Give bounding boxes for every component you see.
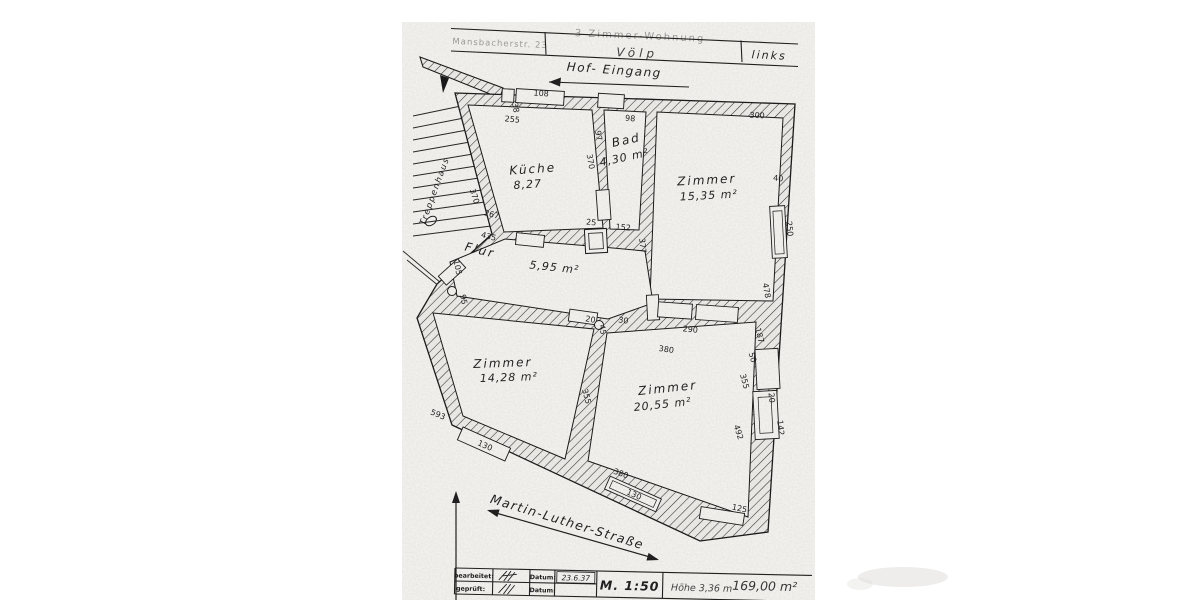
dimension-label: 20 [585, 314, 597, 325]
dimension-label: 30 [618, 315, 629, 325]
dimension-label: 98 [625, 114, 636, 124]
datum-label-2: Datum: [529, 587, 555, 595]
dimension-label: 152 [615, 222, 631, 232]
header-right-text: links [751, 48, 787, 63]
niche-east-upper [755, 348, 780, 389]
datum-label-1: Datum: [530, 574, 556, 582]
dimension-label: 142 [775, 420, 786, 436]
opening-top-small [502, 89, 515, 103]
dimension-label: 25 [586, 218, 597, 228]
dimension-label: 38 [510, 102, 521, 114]
dimension-label: 300 [749, 111, 765, 121]
door-bad [596, 190, 611, 221]
area-note: 169,00 m² [732, 578, 797, 594]
shaft [584, 228, 607, 253]
room-area-label: 14,28 m² [480, 370, 539, 385]
dimension-label: 45 [597, 324, 608, 336]
bearbeitet-label: bearbeitet: [454, 572, 494, 580]
floor-plan-canvas: Mansbacherstr. 23 3 Zimmer-Wohnung Völp … [0, 0, 1200, 600]
room-zimmer-ne [650, 112, 783, 301]
date-value: 23.6.37 [561, 573, 590, 583]
door-kueche [515, 233, 544, 248]
dimension-label: 255 [504, 114, 520, 125]
dimension-label: 97 [593, 130, 604, 142]
room-name-label: Zimmer [472, 355, 533, 371]
height-note: Höhe 3,36 m [671, 583, 732, 595]
scan-smudge [847, 578, 873, 590]
window-east [770, 206, 788, 259]
dimension-label: 250 [784, 221, 795, 237]
dimension-label: 108 [533, 88, 549, 98]
dimension-label: 20 [766, 392, 776, 403]
geprueft-label: geprüft: [456, 586, 485, 594]
room-area-label: 8,27 [513, 177, 542, 192]
dimension-label: 290 [682, 324, 698, 335]
scale-value: M. 1:50 [600, 578, 660, 594]
dimension-label: 377 [637, 238, 648, 254]
header-center-text: Völp [616, 45, 658, 61]
opening-mid-wall-1 [657, 302, 692, 319]
door-pivot [448, 287, 457, 296]
opening-bad-top [598, 93, 625, 109]
opening-mid-wall-2 [695, 305, 738, 323]
dimension-label: 40 [773, 174, 784, 184]
